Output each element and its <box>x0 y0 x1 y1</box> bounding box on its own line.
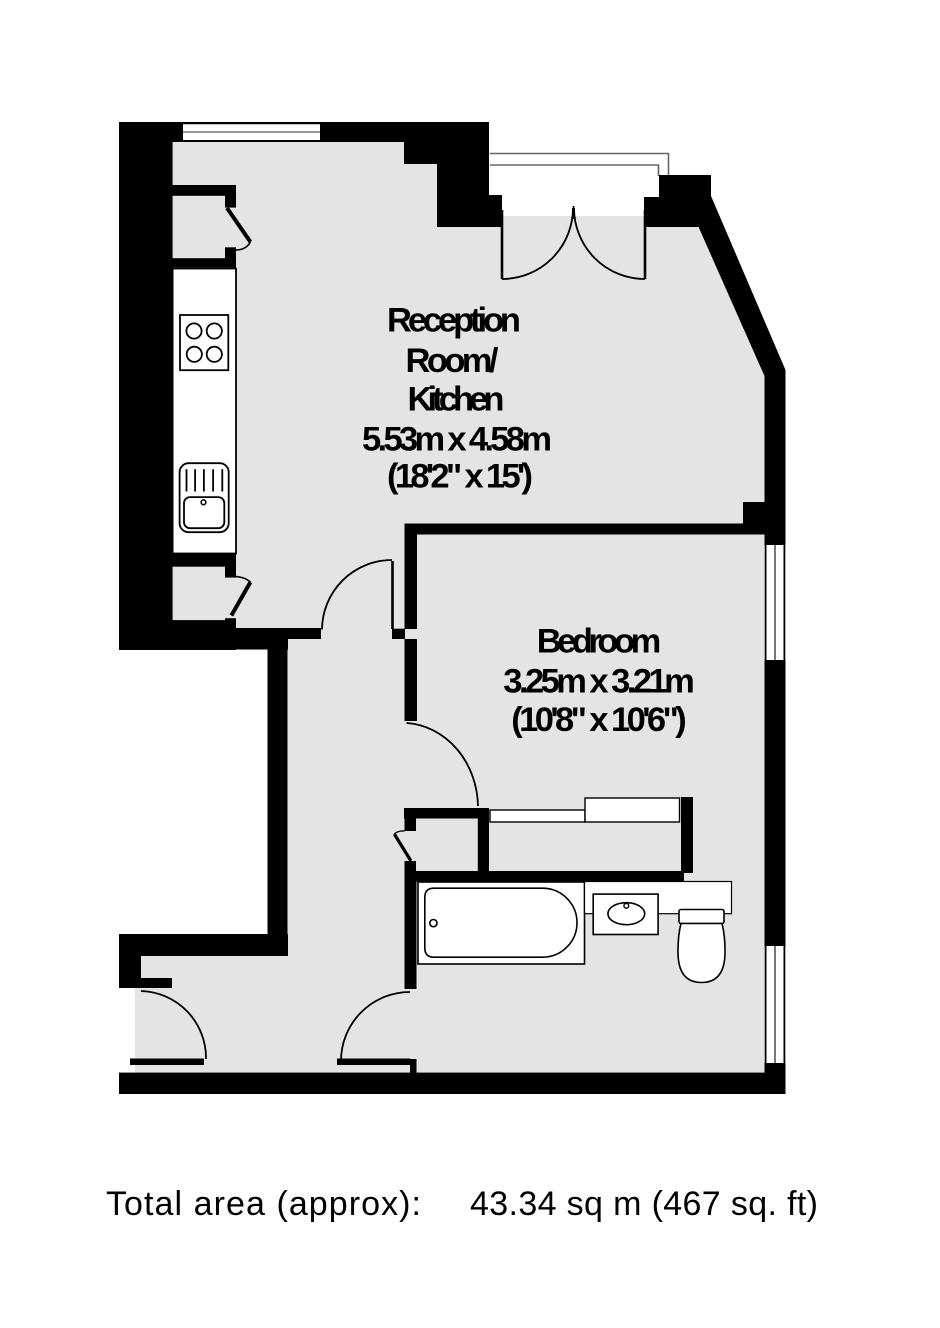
svg-text:(18'2" x 15'): (18'2" x 15') <box>387 458 533 496</box>
svg-text:Bedroom: Bedroom <box>537 623 662 661</box>
svg-text:Room/: Room/ <box>406 342 499 380</box>
svg-text:(10'8" x 10'6"): (10'8" x 10'6") <box>511 701 687 739</box>
svg-text:Reception: Reception <box>387 302 521 340</box>
svg-text:Kitchen: Kitchen <box>408 381 505 419</box>
svg-text:3.25m x 3.21m: 3.25m x 3.21m <box>503 663 695 701</box>
svg-text:5.53m x 4.58m: 5.53m x 4.58m <box>362 420 552 458</box>
svg-text:43.34 sq m (467 sq. ft): 43.34 sq m (467 sq. ft) <box>470 1185 818 1223</box>
svg-text:Total area (approx):: Total area (approx): <box>106 1185 421 1223</box>
